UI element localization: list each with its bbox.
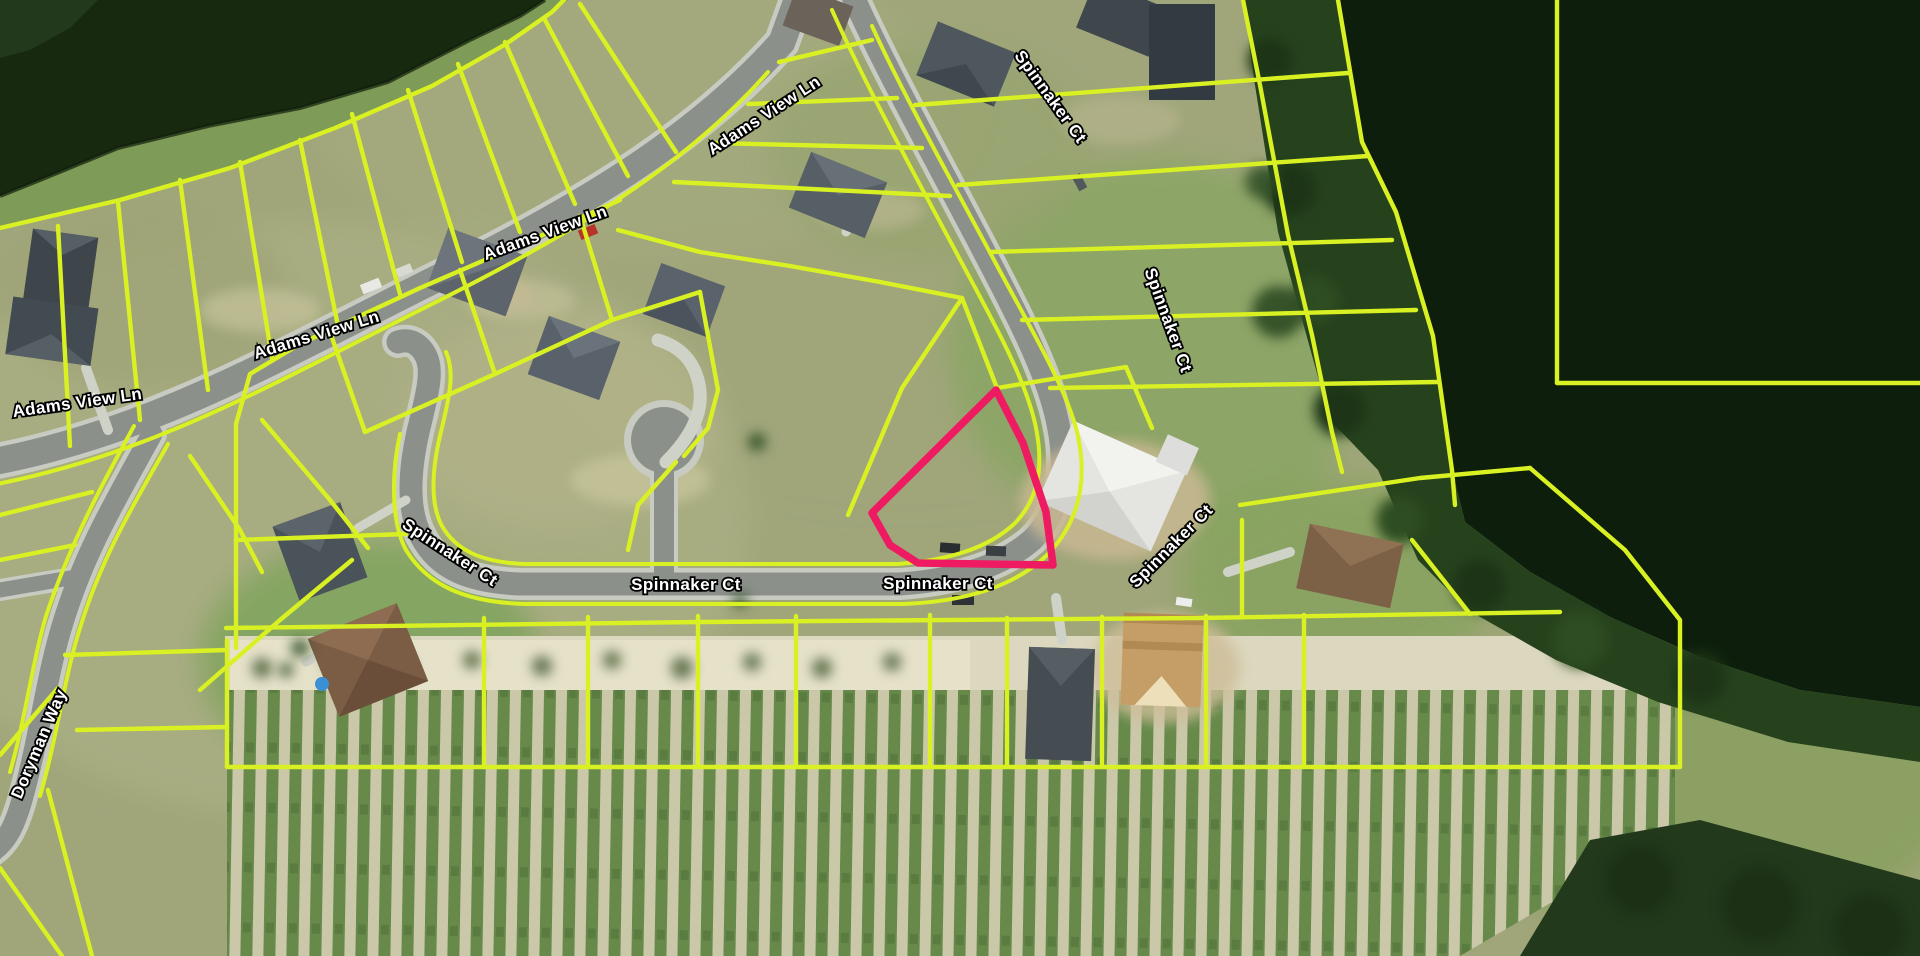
orchard-field (225, 636, 1685, 956)
pool (315, 677, 329, 691)
house-under-construction (1120, 613, 1203, 708)
aerial-parcel-map[interactable]: Adams View Ln Adams View Ln Adams View L… (0, 0, 1920, 956)
house (1025, 647, 1095, 761)
map-canvas[interactable]: Adams View Ln Adams View Ln Adams View L… (0, 0, 1920, 956)
street-label-spinnaker-ct: Spinnaker Ct (631, 575, 741, 594)
street-label-spinnaker-ct: Spinnaker Ct (883, 574, 993, 593)
